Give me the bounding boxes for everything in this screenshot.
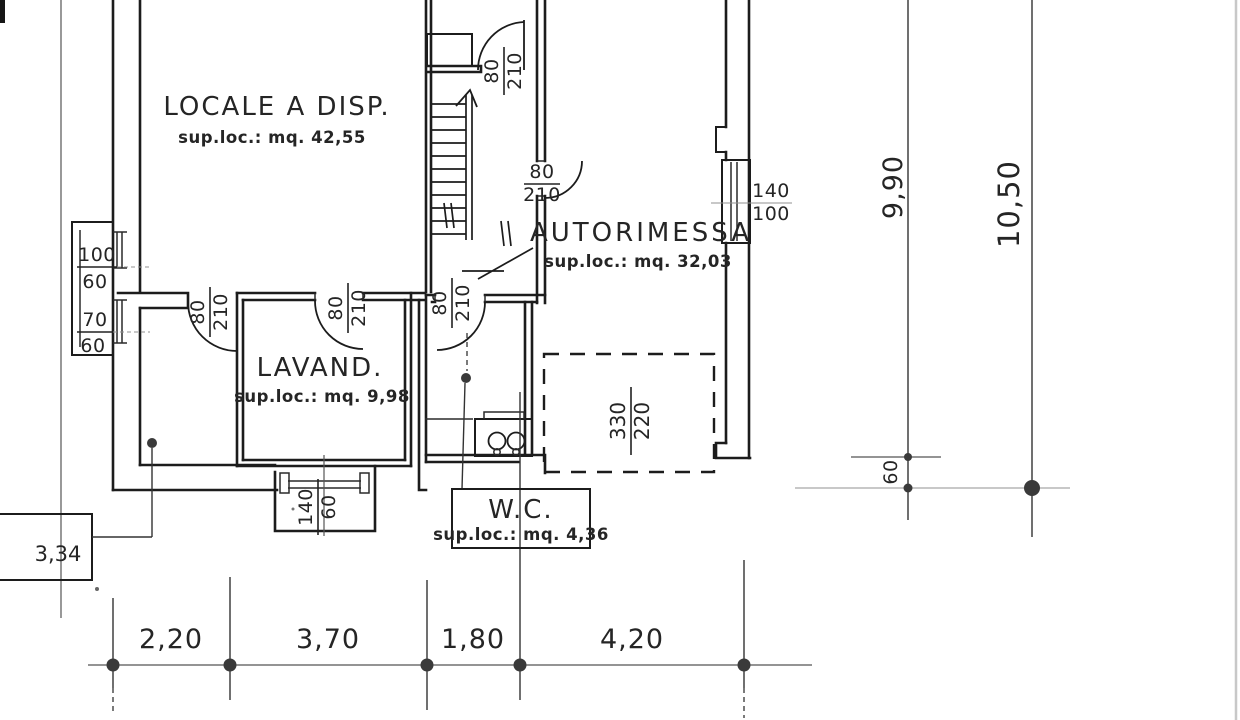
dim-4-20: 4,20 [600, 624, 664, 655]
stair-hall-closet [427, 34, 481, 72]
autorimessa-area: sup.loc.: mq. 32,03 [544, 252, 732, 271]
svg-text:80: 80 [429, 290, 451, 315]
closet-door-size: 80 210 [481, 47, 526, 95]
svg-text:210: 210 [452, 284, 474, 322]
dim-3-70: 3,70 [296, 624, 360, 655]
svg-text:140: 140 [752, 180, 790, 202]
dim-1-80: 1,80 [441, 624, 505, 655]
svg-text:60: 60 [318, 494, 340, 519]
svg-text:100: 100 [78, 244, 116, 266]
locale-title: LOCALE A DISP. [163, 92, 390, 122]
lavanderia-door-size: 80 210 [325, 283, 370, 333]
wc-title: W.C. [488, 495, 553, 525]
leader-left-value: 3,34 [35, 542, 82, 566]
dim-9-90: 9,90 [878, 155, 909, 219]
wc-door-size: 80 210 [429, 278, 474, 328]
svg-text:60: 60 [82, 271, 107, 293]
svg-text:80: 80 [187, 299, 209, 324]
svg-text:80: 80 [481, 58, 503, 83]
svg-text:80: 80 [325, 295, 347, 320]
svg-text:140: 140 [295, 488, 317, 526]
stair-break-marks [444, 203, 511, 246]
autorimessa-title: AUTORIMESSA [530, 218, 752, 248]
svg-text:80: 80 [529, 161, 554, 183]
bottom-dimension-chain: 2,20 3,70 1,80 4,20 [88, 560, 812, 718]
dim-60-offset: 60 [880, 459, 902, 484]
garage-opening-size: 330 220 [606, 387, 654, 455]
floor-plan-drawing: 2,20 3,70 1,80 4,20 9,90 10,50 60 LOCALE… [0, 0, 1240, 720]
dim-2-20: 2,20 [139, 624, 203, 655]
svg-text:220: 220 [630, 402, 654, 440]
svg-text:60: 60 [80, 335, 105, 357]
room-labels: LOCALE A DISP. sup.loc.: mq. 42,55 AUTOR… [35, 92, 752, 566]
svg-text:210: 210 [348, 289, 370, 327]
lavanderia-area: sup.loc.: mq. 9,98 [234, 387, 410, 406]
floor-plan-scan: 2,20 3,70 1,80 4,20 9,90 10,50 60 LOCALE… [0, 0, 1240, 720]
svg-text:70: 70 [82, 309, 107, 331]
svg-text:210: 210 [523, 184, 561, 206]
locale-door-size: 80 210 [187, 287, 232, 337]
lavanderia-title: LAVAND. [257, 353, 384, 383]
wc-area: sup.loc.: mq. 4,36 [433, 525, 609, 544]
right-dimension-lines: 9,90 10,50 60 [795, 0, 1070, 537]
locale-area: sup.loc.: mq. 42,55 [178, 128, 366, 147]
staircase [431, 90, 533, 279]
garage-door-size: 80 210 [523, 161, 561, 206]
wc-walls [419, 295, 545, 490]
svg-text:210: 210 [210, 293, 232, 331]
svg-text:210: 210 [504, 52, 526, 90]
dim-10-50: 10,50 [992, 160, 1026, 248]
svg-text:330: 330 [606, 402, 630, 440]
svg-text:100: 100 [752, 203, 790, 225]
